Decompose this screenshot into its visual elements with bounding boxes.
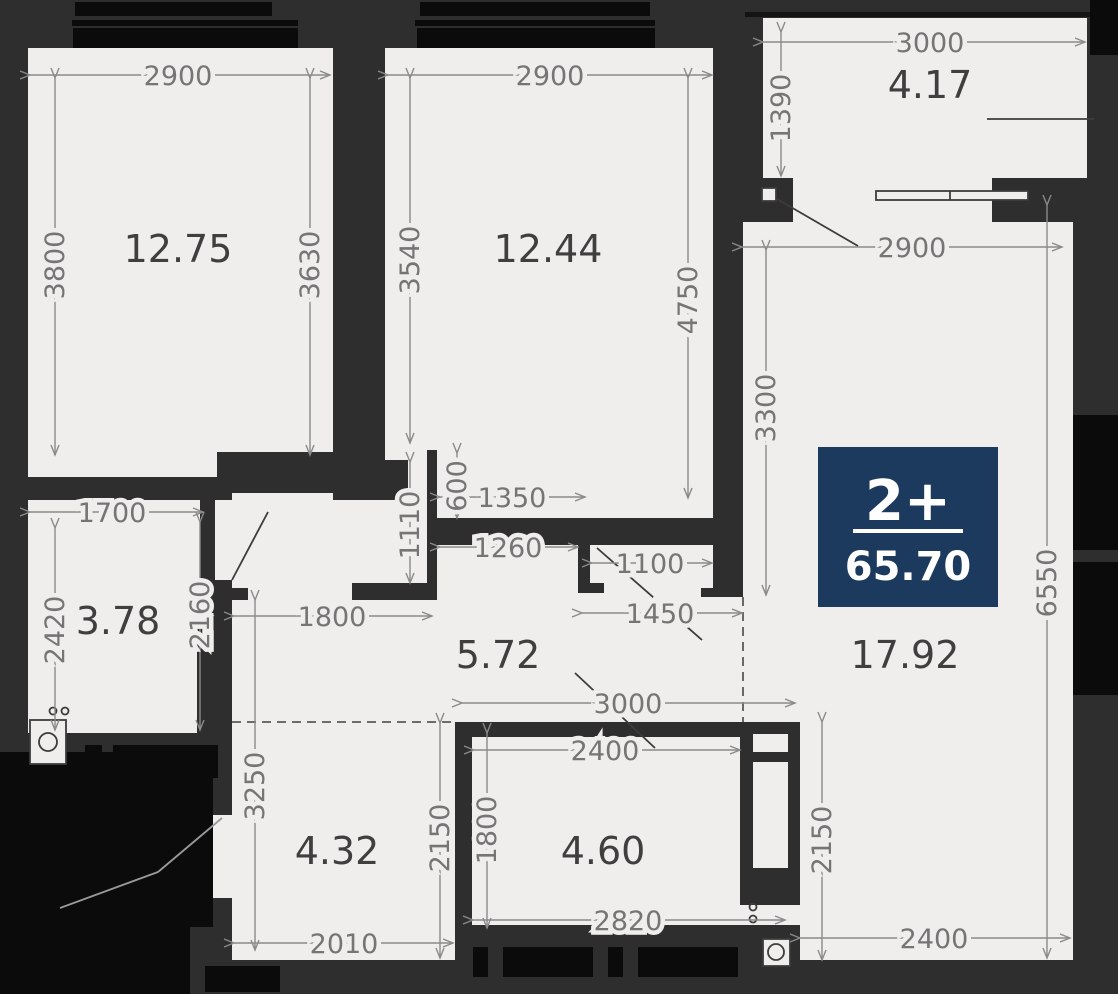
apartment-badge: 2+ 65.70 [818,447,998,607]
dim-label: 3300 [751,374,782,443]
room-area-label: 12.75 [124,227,233,271]
door-hinge [762,188,776,201]
dim-label: 1390 [766,74,797,143]
dim-label: 2160 [185,581,216,650]
room-area-label: 12.44 [494,227,603,271]
badge-divider [853,529,963,533]
dim-label: 3000 [594,689,663,720]
room-area-label: 17.92 [851,633,960,677]
dim-label: 1350 [478,483,547,514]
dim-label: 3630 [295,231,326,300]
room-area-label: 4.17 [888,63,973,107]
dim-label: 1450 [626,599,695,630]
dim-label: 1700 [78,498,147,529]
dim-label: 3000 [896,28,965,59]
dim-label: 2820 [594,906,663,937]
dim-label: 2900 [144,61,213,92]
dim-label: 1110 [395,491,426,560]
room-area-label: 4.60 [561,829,646,873]
balcony-door [876,191,1028,200]
dim-label: 2400 [571,736,640,767]
dim-label: 2400 [900,924,969,955]
room-area-label: 5.72 [456,633,541,677]
dim-label: 2420 [40,596,71,665]
dim-label: 2900 [516,61,585,92]
dim-label: 1800 [298,602,367,633]
dim-label: 600 [442,460,473,512]
badge-rooms-label: 2+ [865,469,951,534]
badge-area-label: 65.70 [845,544,972,590]
dim-label: 2150 [807,806,838,875]
dim-label: 2150 [425,804,456,873]
dim-label: 2900 [878,233,947,264]
room-area-label: 3.78 [76,599,161,643]
dim-label: 3800 [40,231,71,300]
dim-label: 1100 [616,549,685,580]
dim-label: 1800 [472,796,503,865]
dim-label: 2010 [310,929,379,960]
room-area-label: 4.32 [295,829,380,873]
floor-plan: 2900 2900 3000 2900 1700 1350 1260 1100 … [0,0,1118,994]
dim-label: 1260 [474,533,543,564]
dim-label: 3250 [240,752,271,821]
floor-plan-page: 2900 2900 3000 2900 1700 1350 1260 1100 … [0,0,1118,994]
dim-label: 3540 [395,226,426,295]
dim-label: 6550 [1032,549,1063,618]
dim-label: 4750 [673,266,704,335]
